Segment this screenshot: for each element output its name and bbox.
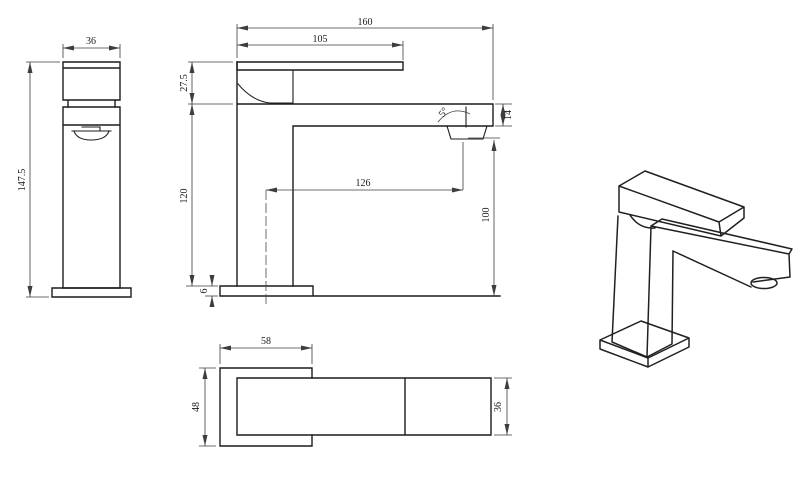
dim-base-depth: 48 (191, 368, 216, 446)
dim-label-body-height: 120 (179, 189, 190, 204)
dim-body-height: 120 (179, 104, 218, 286)
isometric-view (600, 171, 792, 367)
dim-spout-reach: 126 (266, 142, 463, 305)
dim-total-length: 160 (237, 17, 493, 100)
dim-aerator-angle: 5° (437, 106, 470, 122)
dim-base-width: 58 (220, 336, 312, 364)
front-handle-neck (238, 70, 293, 104)
dim-label-spout-reach: 126 (356, 178, 371, 189)
front-view: 160 105 27.5 120 6 (179, 17, 514, 307)
iso-aerator (751, 278, 777, 289)
side-handle-outline (63, 62, 120, 107)
dim-label-handle-length: 105 (313, 34, 328, 45)
faucet-technical-drawing: 36 147.5 160 105 (0, 0, 800, 478)
front-base-outline (220, 286, 500, 296)
dim-label-outlet-height: 100 (481, 208, 492, 223)
front-body-outline (237, 62, 493, 286)
iso-column (612, 216, 673, 357)
dim-label-base-width: 58 (261, 336, 271, 347)
dim-label-spout-tip-height: 14 (503, 110, 514, 120)
top-view: 58 48 36 (191, 336, 512, 446)
dim-label-handle-width: 36 (493, 402, 504, 412)
dim-handle-height: 27.5 (179, 62, 233, 104)
dim-label-handle-height: 27.5 (179, 74, 190, 92)
dim-spout-tip-height: 14 (495, 104, 514, 126)
side-body-outline (63, 107, 120, 288)
drawing-canvas: 36 147.5 160 105 (0, 0, 800, 478)
dim-side-height: 147.5 (17, 62, 60, 297)
dim-handle-width: 36 (493, 378, 512, 435)
dim-side-width: 36 (63, 36, 120, 58)
dim-label-base-depth: 48 (191, 402, 202, 412)
iso-handle (619, 171, 744, 236)
dim-label-aerator-angle: 5° (437, 106, 451, 120)
dim-handle-length: 105 (237, 34, 403, 60)
dim-base-thickness: 6 (199, 275, 218, 307)
side-spout-detail (72, 127, 111, 140)
front-handle-lever (237, 62, 403, 70)
dim-label-side-width: 36 (86, 36, 96, 47)
side-base-outline (52, 288, 131, 297)
dim-label-base-thickness: 6 (199, 289, 210, 294)
top-handle-outline (237, 378, 491, 435)
side-view: 36 147.5 (17, 36, 131, 297)
dim-label-total-length: 160 (358, 17, 373, 28)
dim-outlet-height: 100 (468, 138, 500, 296)
dim-label-side-height: 147.5 (17, 169, 28, 192)
